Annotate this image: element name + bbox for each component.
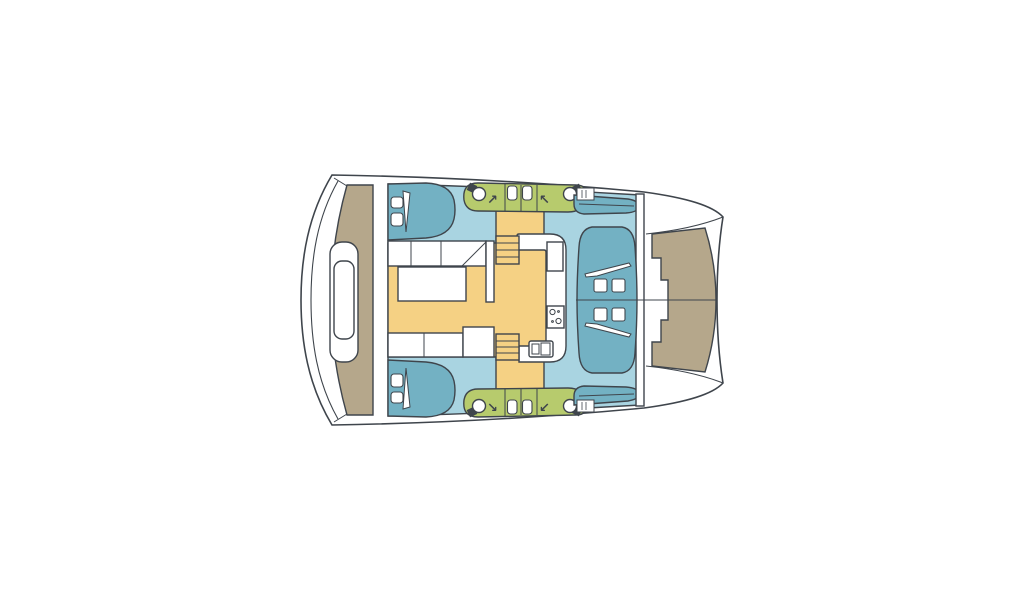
door-swing-arrow-icon: ↖	[539, 193, 550, 208]
catamaran-floor-plan: ↗ ↖ ↘ ↙	[0, 0, 1024, 600]
bench-seat	[388, 333, 463, 357]
pillow	[391, 374, 403, 387]
double-bed	[388, 183, 455, 240]
cockpit-table	[334, 261, 354, 339]
port-stairs	[496, 236, 519, 264]
door-swing-arrow-icon: ↙	[539, 401, 550, 416]
galley-sink	[529, 341, 553, 357]
seat-cushion	[594, 308, 607, 321]
port-head: ↗ ↖	[464, 183, 587, 212]
washbasin	[508, 186, 518, 200]
washbasin	[523, 400, 533, 414]
starboard-aft-cabin	[388, 360, 455, 417]
washbasin	[508, 400, 518, 414]
washbasin	[523, 186, 533, 200]
starboard-deck-hatch	[577, 400, 594, 412]
port-aft-cabin	[388, 183, 455, 240]
sofa-back	[388, 241, 486, 266]
starboard-head: ↘ ↙	[464, 388, 587, 417]
pillow	[391, 392, 403, 403]
hatch-frame	[577, 188, 594, 200]
port-deck-hatch	[577, 188, 594, 200]
door-swing-arrow-icon: ↗	[487, 193, 498, 208]
seat-cushion	[612, 308, 625, 321]
toilet-bowl	[473, 188, 486, 201]
pillow	[391, 197, 403, 208]
sofa-arm	[486, 241, 494, 302]
hatch-frame	[577, 400, 594, 412]
stove	[547, 306, 564, 328]
seat-cushion	[612, 279, 625, 292]
door-swing-arrow-icon: ↘	[487, 401, 498, 416]
bench-end-unit	[463, 327, 494, 357]
fridge	[547, 242, 563, 271]
pillow	[391, 213, 403, 226]
toilet-bowl	[473, 400, 486, 413]
double-bed	[388, 360, 455, 417]
saloon	[388, 234, 566, 362]
saloon-table	[398, 267, 466, 301]
seat-cushion	[594, 279, 607, 292]
stove-top	[547, 306, 564, 328]
starboard-stairs	[496, 334, 519, 360]
